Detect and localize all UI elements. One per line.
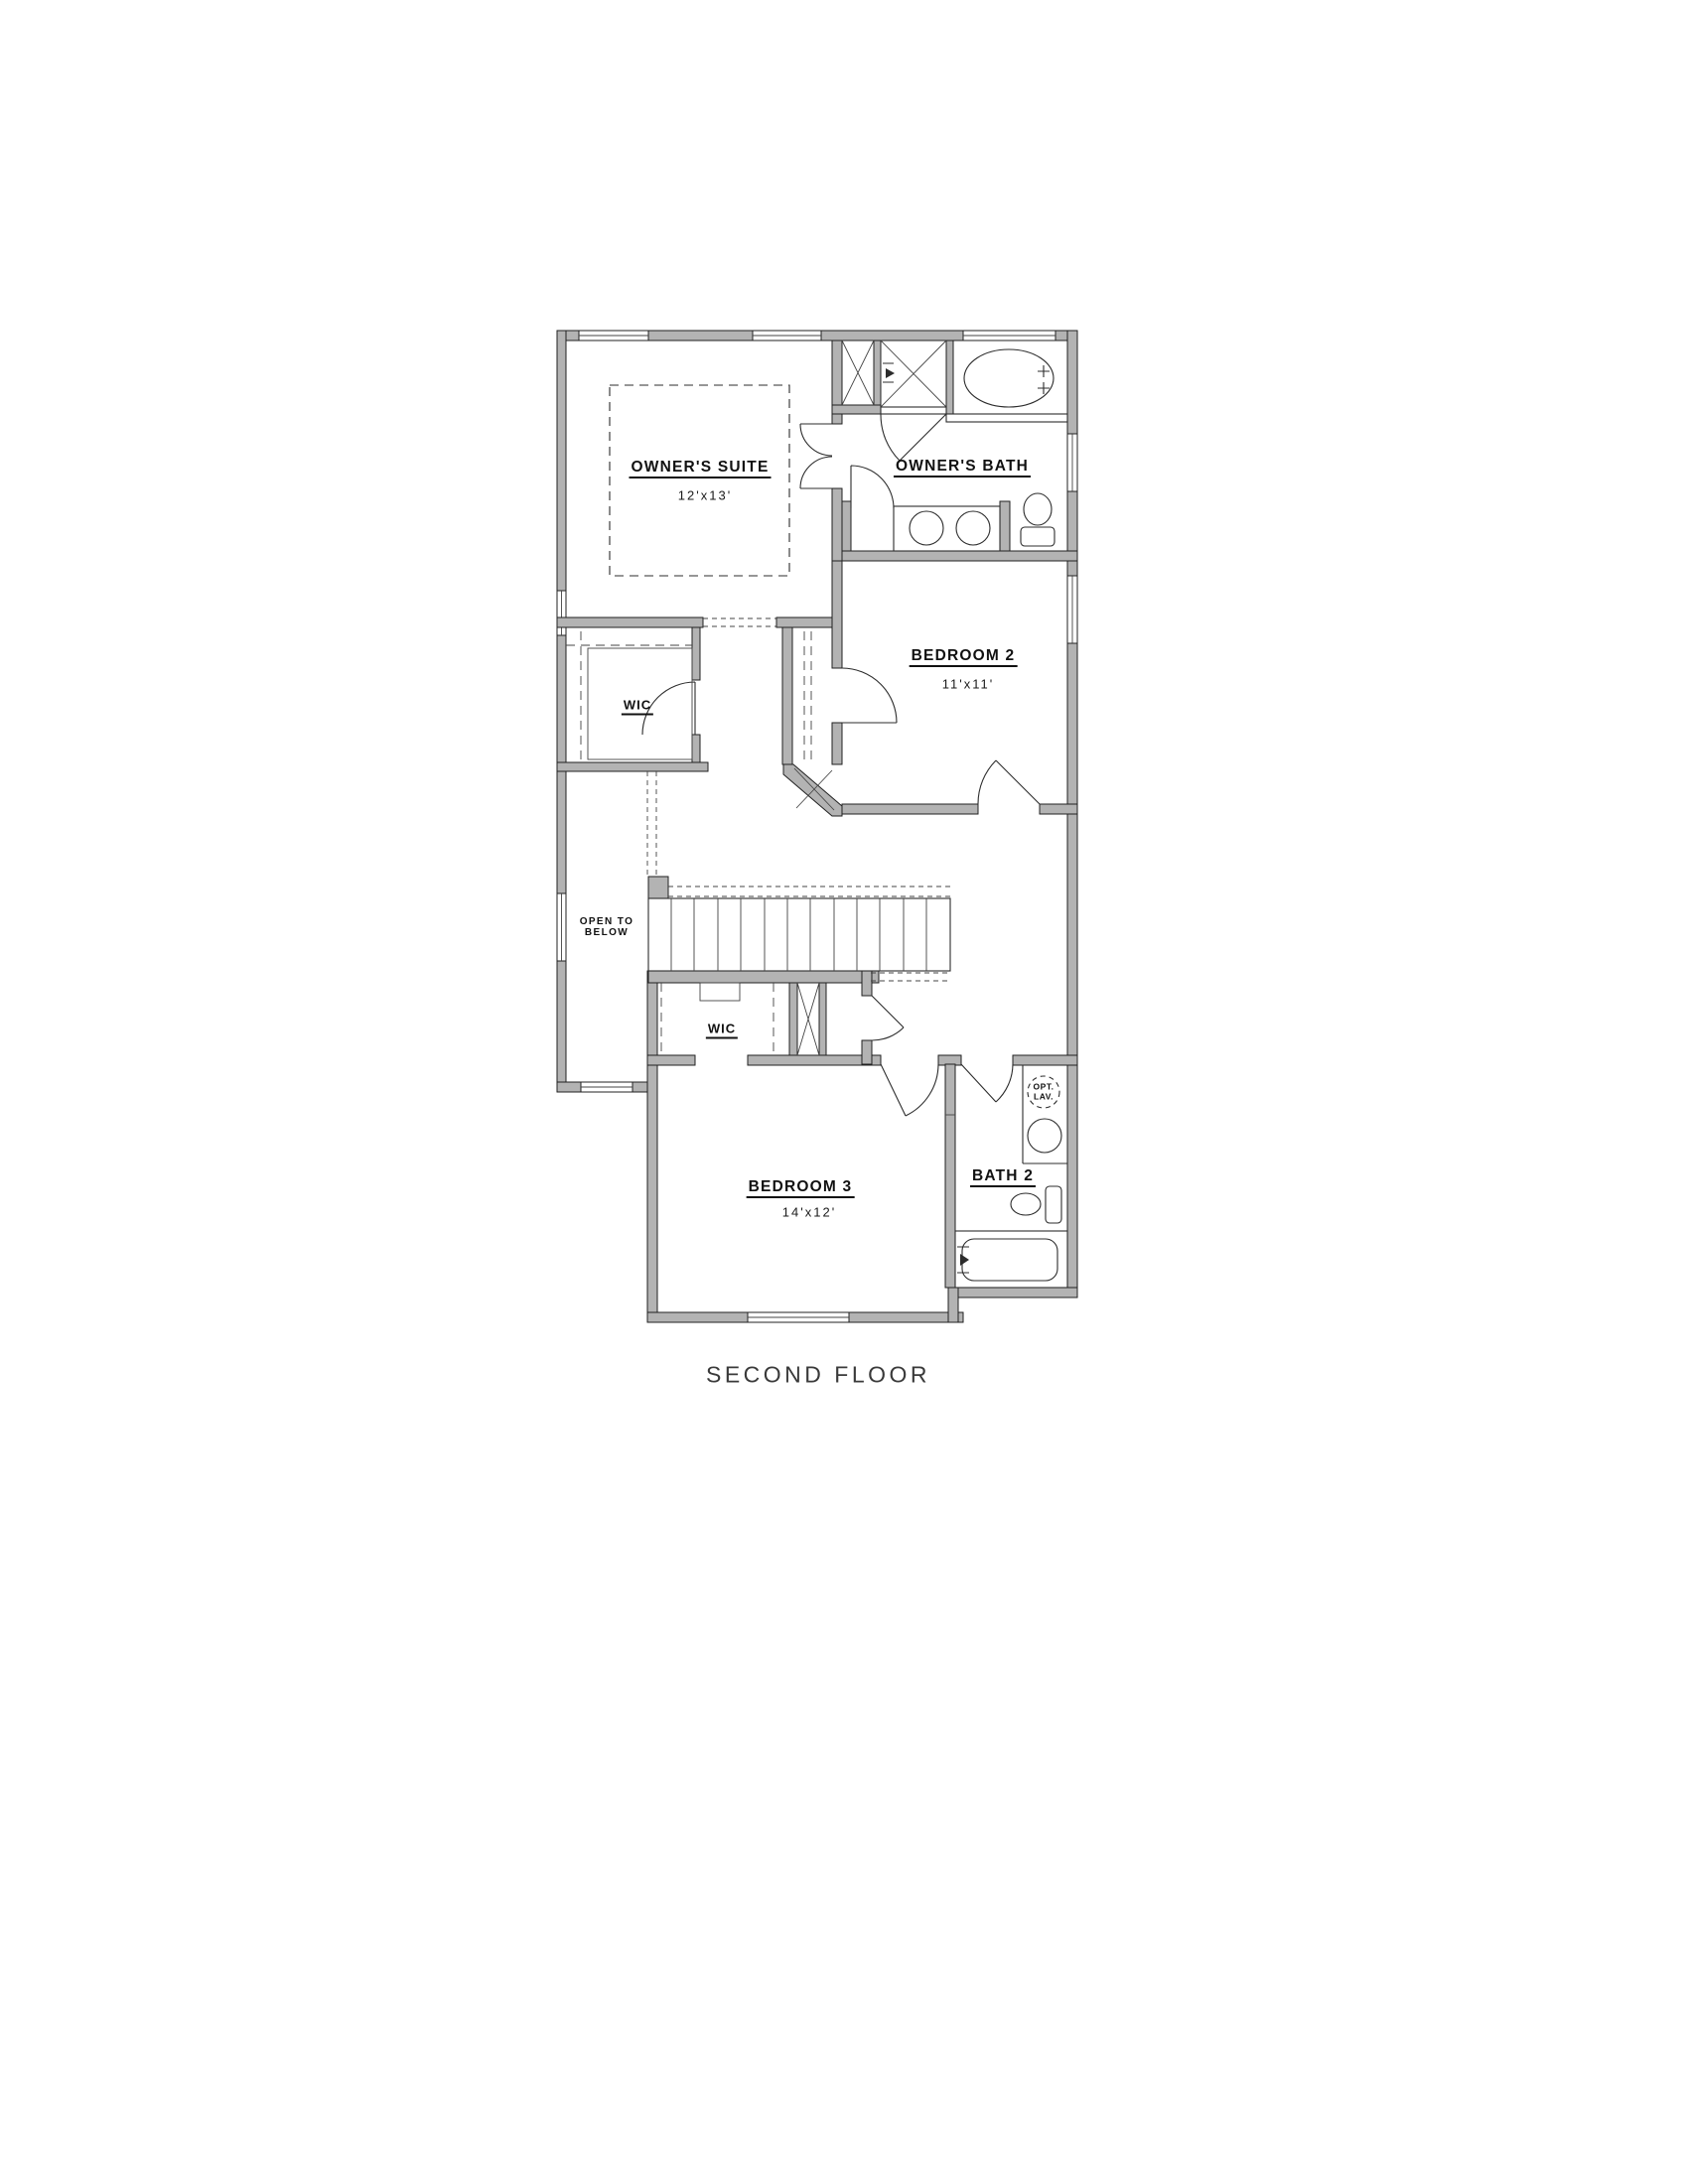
stairs [647,771,950,981]
label-bath-2: BATH 2 [970,1167,1036,1185]
dim-bedroom-2: 11'x11' [942,677,994,692]
floor-caption: SECOND FLOOR [706,1362,930,1389]
dim-owners-suite: 12'x13' [678,488,732,503]
label-open-to-below: OPEN TO BELOW [580,916,634,938]
label-bedroom-2: BEDROOM 2 [910,647,1018,665]
label-opt-lav: OPT. LAV. [1034,1083,1055,1102]
interior-walls [557,341,1077,1288]
label-owners-bath: OWNER'S BATH [894,458,1031,476]
label-wic-master: WIC [622,698,653,713]
label-bedroom-3: BEDROOM 3 [747,1178,855,1196]
label-owners-suite: OWNER'S SUITE [630,459,772,477]
label-wic-bedroom3: WIC [706,1022,738,1036]
dim-bedroom-3: 14'x12' [782,1205,836,1220]
floor-plan-page: OWNER'S SUITE 12'x13' OWNER'S BATH BEDRO… [0,0,1688,2184]
